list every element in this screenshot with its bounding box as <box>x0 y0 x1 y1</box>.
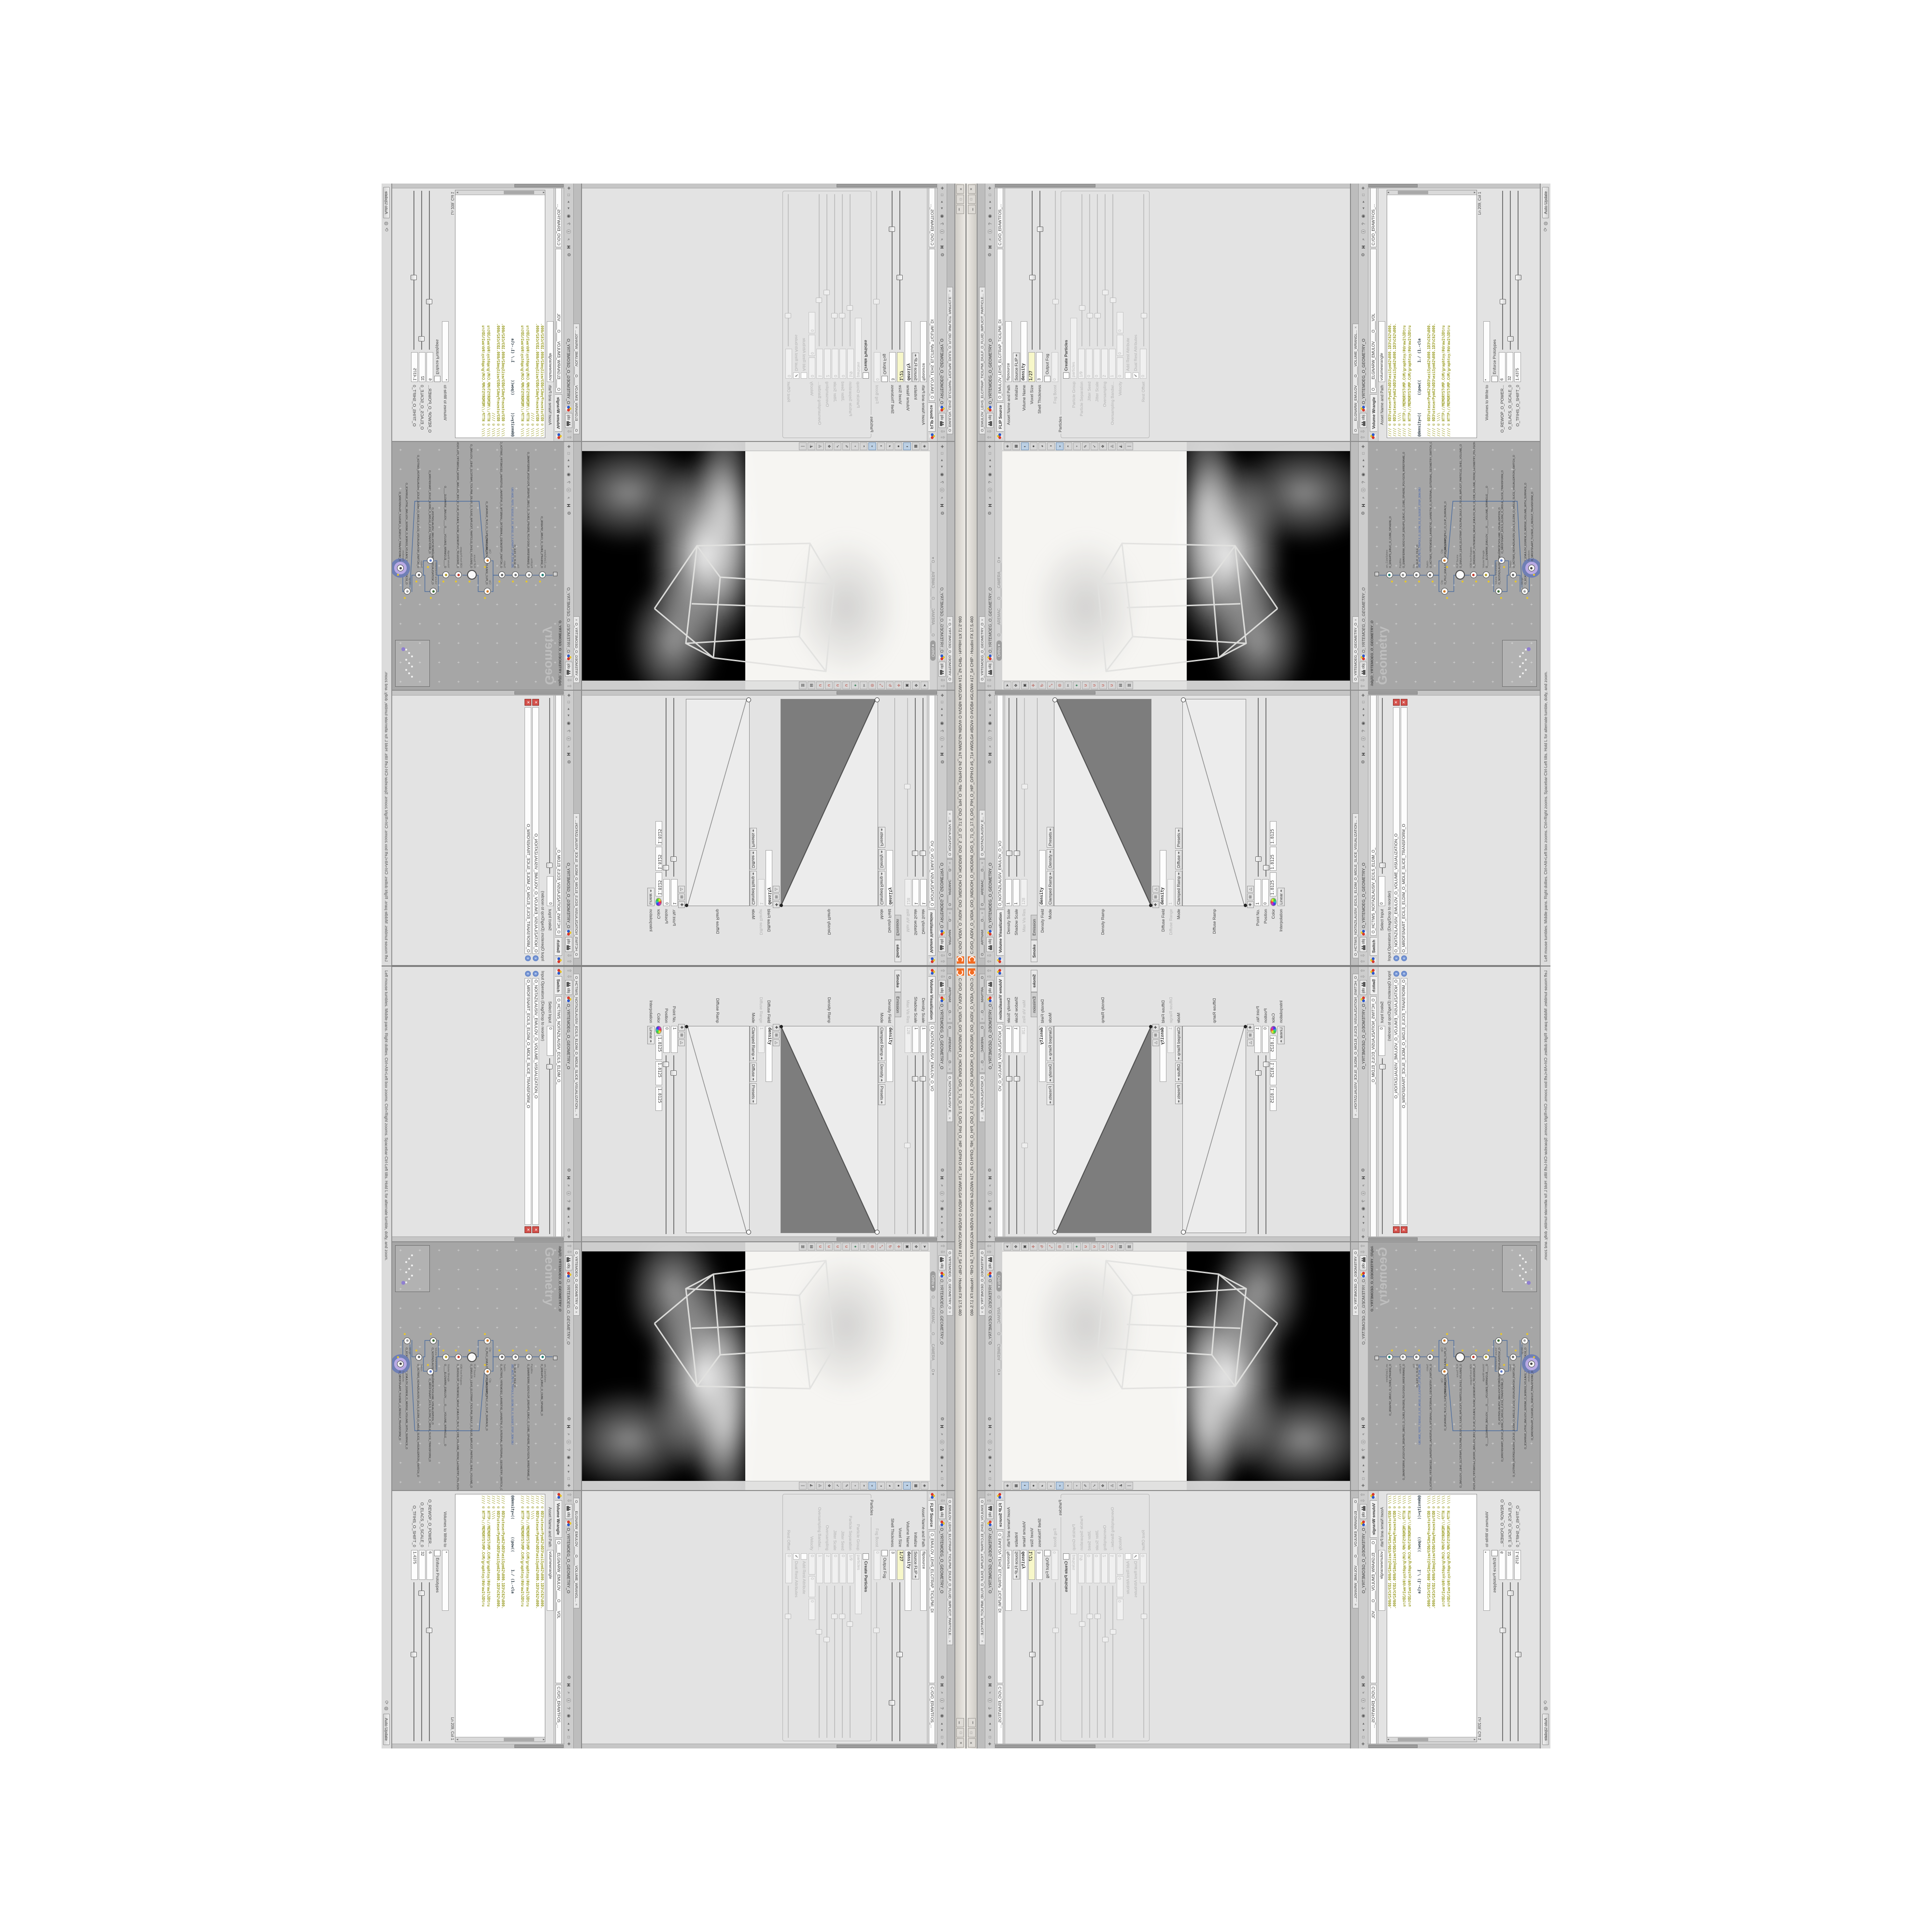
param-slider[interactable] <box>1006 1054 1012 1235</box>
radar-icon[interactable]: ◉ <box>987 471 993 478</box>
param-dropdown[interactable]: Linear◂▸ <box>1278 888 1285 906</box>
sync-icon[interactable]: ⟳ <box>384 1701 389 1705</box>
houdini-help-icon[interactable]: H <box>1361 1175 1366 1181</box>
param-field[interactable]: 0 <box>1378 876 1385 906</box>
slider-handle[interactable] <box>1263 1062 1269 1067</box>
param-field[interactable]: density <box>1021 321 1027 382</box>
param-dropdown[interactable]: Source FLIP◂▸ <box>912 1550 920 1579</box>
gear-icon[interactable]: ⚙ <box>939 759 945 765</box>
background-image-icon[interactable]: ▦ <box>1012 1482 1020 1490</box>
info-icon[interactable]: ⓘ <box>987 1439 993 1445</box>
split-left-icon[interactable]: ◂ <box>1361 1462 1365 1468</box>
param-field[interactable]: density <box>766 850 772 906</box>
network-node[interactable] <box>1495 1337 1502 1344</box>
breadcrumb-path[interactable]: O_YRTEMOEG_O_GEOMETRY_O <box>988 518 993 653</box>
param-checkbox[interactable] <box>863 1553 869 1560</box>
gear-icon[interactable]: ⚙ <box>566 1416 571 1422</box>
ramp-widget[interactable] <box>1054 1026 1151 1233</box>
param-field[interactable]: 6 <box>1499 352 1506 382</box>
help-circle-icon[interactable]: ? <box>567 1705 571 1711</box>
param-field[interactable]: 0 <box>1117 1599 1123 1620</box>
close-tab-icon[interactable]: ✕ <box>948 812 952 815</box>
snap-point-magnet-icon[interactable]: ∪ <box>1082 1243 1090 1250</box>
axis-gizmo-icon[interactable]: ✦ <box>851 682 859 689</box>
pane-scroll-thumb[interactable] <box>514 184 564 187</box>
network-root-chip[interactable]: obj <box>565 413 572 428</box>
param-checkbox[interactable] <box>1063 1553 1069 1560</box>
close-tab-icon[interactable]: ✕ <box>575 619 579 621</box>
close-tab-icon[interactable]: ✕ <box>980 812 984 815</box>
houdini-help-icon[interactable]: H <box>1361 751 1366 757</box>
sync-icon[interactable]: ⟳ <box>384 227 389 231</box>
slider-handle[interactable] <box>905 784 911 789</box>
param-field[interactable]: 1 <box>1254 879 1261 906</box>
split-right-icon[interactable]: ▸ <box>1361 1220 1365 1226</box>
slider-handle[interactable] <box>1110 1629 1116 1634</box>
param-field[interactable]: 0 <box>1117 312 1123 333</box>
param-slider[interactable] <box>1086 1585 1093 1739</box>
node-name-field[interactable]: O_NOITAZILAUSIV_EMULOV_O_VO <box>929 1024 936 1239</box>
annotate-pen-icon[interactable]: ✎ <box>842 442 850 450</box>
houdini-help-icon[interactable]: H <box>1361 502 1366 509</box>
wireframe-icon[interactable]: ◓ <box>1065 1482 1072 1490</box>
code-scroll-thumb[interactable] <box>504 1738 534 1741</box>
param-dropdown[interactable]: Density◂▸ <box>1047 849 1054 869</box>
breadcrumb-path[interactable]: O_YRTEMOEG_O_GEOMETRY_O <box>940 1528 945 1673</box>
param-slider[interactable] <box>913 1054 919 1235</box>
split-left-icon[interactable]: ◂ <box>567 205 571 212</box>
axis-gizmo-icon[interactable]: ✦ <box>1073 1243 1081 1250</box>
pane-scrollbar[interactable] <box>994 1236 1350 1241</box>
help-circle-icon[interactable]: ? <box>940 1705 945 1711</box>
houdini-help-icon[interactable]: H <box>988 751 993 757</box>
split-right-icon[interactable]: ▸ <box>940 457 944 463</box>
param-slider[interactable] <box>1515 1581 1521 1742</box>
param-checkbox[interactable] <box>1044 1550 1051 1556</box>
reorder-icon[interactable]: ‹ <box>533 971 539 977</box>
param-slider[interactable] <box>921 1054 927 1235</box>
pane-tab[interactable]: O____AREMAC____O...✕ <box>979 859 985 909</box>
param-field[interactable]: 1/27 <box>897 352 904 382</box>
input-operator-field[interactable]: O_MROFSNART_ECILS_ELDIM_O_MIDLE_SLICE_TR… <box>1401 978 1407 1225</box>
hand-tool-icon[interactable]: ✥ <box>1012 682 1020 689</box>
param-slider[interactable] <box>1255 1054 1261 1235</box>
houdini-help-icon[interactable]: H <box>1361 244 1366 250</box>
pane-scrollbar[interactable] <box>582 1744 938 1748</box>
clipping-icon[interactable]: ◭ <box>1117 1482 1124 1490</box>
houdini-help-icon[interactable]: H <box>567 751 571 757</box>
close-tab-icon[interactable]: ✕ <box>948 1117 952 1119</box>
gear-icon[interactable]: ⚙ <box>566 510 571 516</box>
param-field[interactable]: 128 <box>905 879 911 906</box>
search-icon[interactable]: ⌕ <box>939 1690 945 1696</box>
param-field[interactable]: 3 <box>1036 1550 1043 1580</box>
node-name-field[interactable]: O_EMULOV_LEHS_ELCITRAP_TICILPMI_DI <box>929 249 936 401</box>
param-field[interactable]: 3 <box>889 352 896 382</box>
search-icon[interactable]: ⌕ <box>566 1690 571 1696</box>
viewport-canvas[interactable]: ➤✥▣✛↻⤡◎✂✦∪∪∪∪▤▥ ◈▦◐●◕◑◒◓∘✎➶❖◬◭❘ <box>582 442 930 690</box>
probe-icon[interactable]: ➶ <box>834 442 841 450</box>
param-field[interactable]: 0 <box>1117 335 1123 356</box>
slider-handle[interactable] <box>824 290 830 295</box>
network-root-chip[interactable]: obj <box>1360 413 1367 428</box>
pose-handle-icon[interactable]: ◎ <box>1056 1243 1064 1250</box>
hda-path-field[interactable]: C:/O/O_ERAWTFOS_... <box>997 185 1003 247</box>
network-root-chip[interactable]: obj <box>938 937 946 952</box>
network-node[interactable] <box>455 571 462 578</box>
camera-menu[interactable]: O____AREMAC____O____CAMERA____O ▾ <box>997 1295 1001 1375</box>
nav-back-icon[interactable]: ⇧ <box>1361 1244 1366 1248</box>
breadcrumb-path[interactable]: O_YRTEMOEG_O_GEOMETRY_O <box>567 1528 571 1673</box>
pane-scrollbar[interactable] <box>994 691 1350 696</box>
param-field[interactable]: 32 <box>1506 352 1513 382</box>
param-checkbox[interactable]: ✓ <box>794 1553 800 1560</box>
search-icon[interactable]: ⌕ <box>987 743 993 750</box>
slider-handle[interactable] <box>547 1064 553 1069</box>
float-pane-icon[interactable]: ✚ <box>567 1234 571 1240</box>
breadcrumb-path[interactable]: O_YRTEMOEG_O_GEOMETRY_O <box>940 1279 945 1414</box>
param-field[interactable]: 0 <box>1051 1550 1058 1580</box>
clipping-icon[interactable]: ◭ <box>808 1482 815 1490</box>
nav-back-icon[interactable]: ⇧ <box>939 968 945 973</box>
rotate-handle-icon[interactable]: ↻ <box>1038 682 1046 689</box>
radar-icon[interactable]: ◉ <box>1361 213 1366 219</box>
split-left-icon[interactable]: ◂ <box>988 464 992 470</box>
param-slider[interactable] <box>832 1585 838 1739</box>
param-slider[interactable] <box>817 193 823 347</box>
network-node[interactable] <box>1470 571 1477 578</box>
param-field[interactable]: 1.8125 <box>655 821 662 845</box>
network-node[interactable] <box>1386 571 1393 578</box>
param-checkbox[interactable]: ✓ <box>1133 1553 1139 1560</box>
slider-handle[interactable] <box>816 298 823 303</box>
marker-button[interactable]: △ <box>1247 1039 1254 1046</box>
color-swatch[interactable] <box>656 1026 662 1034</box>
slider-handle[interactable] <box>426 1628 433 1633</box>
slider-handle[interactable] <box>839 1614 846 1619</box>
scroll-up-icon[interactable]: ▲ <box>1387 1737 1390 1742</box>
input-operator-field[interactable]: O_NOITAZILAUSIV_EMULOV_O_VOLUME_VISUALIZ… <box>532 978 539 1225</box>
view-pivot-icon[interactable]: ◬ <box>1108 442 1116 450</box>
split-right-icon[interactable]: ▸ <box>1361 706 1365 712</box>
probe-icon[interactable]: ➶ <box>1091 1482 1098 1490</box>
auto-update-button[interactable]: Auto Update <box>1542 1714 1549 1745</box>
param-field[interactable]: 0 <box>785 1553 792 1583</box>
float-pane-icon[interactable]: ✚ <box>940 1234 944 1240</box>
search-icon[interactable]: ⌕ <box>987 1182 993 1189</box>
maximize-pane-icon[interactable]: □ <box>940 450 944 456</box>
help-circle-icon[interactable]: ? <box>1361 728 1366 734</box>
smooth-shaded-icon[interactable]: ◕ <box>1038 442 1046 450</box>
nav-forward-icon[interactable]: ⇩ <box>987 429 993 434</box>
param-slider[interactable] <box>874 190 881 351</box>
hda-path-field[interactable]: C:/O/O_ERAWTFOS_... <box>1370 1685 1377 1747</box>
scissors-icon[interactable]: ✂ <box>860 682 867 689</box>
group-list-icon[interactable]: ❖ <box>825 442 833 450</box>
param-field[interactable]: 3 <box>1036 352 1043 382</box>
ramp-endpoint[interactable] <box>780 904 783 907</box>
houdini-help-icon[interactable]: H <box>567 502 571 509</box>
add-point-button[interactable]: ✚ <box>1152 901 1159 908</box>
ramp-endpoint[interactable] <box>685 1025 688 1028</box>
param-dropdown[interactable]: Diffuse◂▸ <box>1175 850 1182 869</box>
param-field[interactable]: 0 <box>1117 357 1123 379</box>
rotate-handle-icon[interactable]: ↻ <box>886 682 894 689</box>
info-icon[interactable]: ⓘ <box>939 1439 945 1445</box>
split-right-icon[interactable]: ▸ <box>1361 457 1365 463</box>
param-dropdown[interactable]: Clamped Ramp◂▸ <box>1047 1026 1054 1061</box>
pane-scroll-thumb[interactable] <box>995 1745 1095 1748</box>
maximize-pane-icon[interactable]: □ <box>567 1227 571 1233</box>
param-slider[interactable] <box>1094 1585 1100 1739</box>
pane-tab[interactable]: O_YRTEMOEG_O_GEOMETRY_O✕ <box>979 616 985 683</box>
param-field[interactable]: 1 <box>1005 1026 1012 1053</box>
pane-tab[interactable]: O_HCTIWS_NOITAZILAUSIV_ECILS_ELDIM_O_MID… <box>574 974 580 1119</box>
network-node[interactable] <box>498 1354 505 1361</box>
param-slider[interactable] <box>897 190 904 351</box>
param-field[interactable]: 1/27 <box>897 1550 904 1580</box>
ramp-endpoint-handle[interactable] <box>746 1230 751 1235</box>
hda-path-field[interactable]: C:/O/O_ERAWTFOS_... <box>929 185 936 247</box>
pane-scroll-thumb[interactable] <box>995 184 1095 187</box>
minimize-button[interactable]: ▁ <box>968 1718 976 1727</box>
color-swatch[interactable] <box>1270 1026 1277 1034</box>
breadcrumb-path[interactable]: O_YRTEMOEG_O_GEOMETRY_O <box>988 1279 993 1414</box>
radar-icon[interactable]: ◉ <box>1361 1206 1366 1212</box>
split-left-icon[interactable]: ◂ <box>940 464 944 470</box>
slider-handle[interactable] <box>874 1628 880 1633</box>
scale-handle-icon[interactable]: ⤡ <box>877 682 885 689</box>
slider-handle[interactable] <box>889 1700 895 1705</box>
smooth-shaded-icon[interactable]: ◕ <box>886 442 894 450</box>
search-icon[interactable]: ⌕ <box>939 236 945 242</box>
param-checkbox[interactable] <box>801 1553 808 1560</box>
network-node[interactable] <box>1528 1361 1535 1367</box>
slider-handle[interactable] <box>1079 305 1085 311</box>
info-icon[interactable]: ⓘ <box>987 487 993 493</box>
param-field[interactable]: 1 <box>816 349 823 379</box>
network-node[interactable] <box>1498 1368 1505 1375</box>
param-slider[interactable] <box>1021 697 1027 878</box>
param-field[interactable]: 1/9 <box>847 1553 854 1583</box>
help-circle-icon[interactable]: ? <box>567 728 571 734</box>
remove-input-button[interactable]: ✕ <box>532 1226 539 1233</box>
param-slider[interactable] <box>547 697 554 875</box>
group-list-icon[interactable]: ❖ <box>1099 442 1107 450</box>
float-pane-icon[interactable]: ✚ <box>567 1741 571 1747</box>
param-slider[interactable] <box>664 697 670 878</box>
ramp-endpoint-handle[interactable] <box>746 697 751 702</box>
info-icon[interactable]: ⓘ <box>987 228 993 235</box>
folder-tab-emission[interactable]: Emission <box>895 992 901 1017</box>
nav-back-icon[interactable]: ⇧ <box>939 1492 945 1497</box>
radar-icon[interactable]: ◉ <box>987 1713 993 1719</box>
info-icon[interactable]: ⓘ <box>939 1697 945 1704</box>
split-right-icon[interactable]: ▸ <box>1361 1727 1365 1733</box>
marker-button[interactable]: △ <box>1152 1039 1159 1046</box>
param-slider[interactable] <box>412 1581 418 1742</box>
maximize-pane-icon[interactable]: □ <box>1361 1734 1365 1740</box>
code-scrollbar[interactable]: ▲▼ <box>455 190 545 195</box>
param-dropdown[interactable]: Presets◂▸ <box>1175 1083 1182 1104</box>
input-operator-field[interactable]: O_NOITAZILAUSIV_EMULOV_O_VOLUME_VISUALIZ… <box>1393 707 1400 954</box>
maximize-pane-icon[interactable]: □ <box>1361 450 1365 456</box>
close-tab-icon[interactable]: ✕ <box>980 862 984 864</box>
search-icon[interactable]: ⌕ <box>987 1690 993 1696</box>
add-point-button[interactable]: ✚ <box>773 1024 780 1031</box>
folder-tab-smoke[interactable]: Smoke <box>895 940 901 962</box>
help-circle-icon[interactable]: ? <box>940 1447 945 1453</box>
node-type-tab[interactable]: Volume Wrangle <box>555 1500 563 1538</box>
gear-icon[interactable]: ⚙ <box>1361 1674 1366 1680</box>
network-node[interactable] <box>1413 1354 1420 1361</box>
param-slider[interactable] <box>1021 1054 1027 1235</box>
info-icon[interactable]: ⓘ <box>939 228 945 235</box>
param-checkbox[interactable] <box>1125 372 1131 379</box>
param-field[interactable]: 0 <box>1051 352 1058 382</box>
remove-input-button[interactable]: ✕ <box>1393 699 1400 706</box>
param-slider[interactable] <box>824 193 831 347</box>
param-field[interactable]: density <box>1021 1550 1027 1611</box>
slider-handle[interactable] <box>1022 784 1028 789</box>
flat-shaded-icon[interactable]: ◑ <box>877 1482 885 1490</box>
vex-code-editor[interactable]: //// © 0D3%steserPym62%0D3%eziSym62%000.… <box>455 190 545 438</box>
split-right-icon[interactable]: ▸ <box>988 1469 992 1475</box>
network-node[interactable] <box>415 571 422 578</box>
slider-handle[interactable] <box>785 313 792 318</box>
param-slider[interactable] <box>874 1581 881 1742</box>
param-field[interactable]: 128 <box>1021 1026 1027 1053</box>
help-circle-icon[interactable]: ? <box>940 1198 945 1204</box>
param-field[interactable]: 1 <box>1013 879 1020 906</box>
layout-single-icon[interactable]: ◈ <box>1004 442 1011 450</box>
slider-handle[interactable] <box>1102 290 1108 295</box>
points-display-icon[interactable]: ∘ <box>851 442 859 450</box>
param-field[interactable]: flipsource <box>920 321 927 382</box>
delete-point-button[interactable]: ⊞ <box>1247 1032 1254 1038</box>
slider-handle[interactable] <box>1141 1614 1147 1619</box>
nav-forward-icon[interactable]: ⇩ <box>566 953 571 958</box>
split-right-icon[interactable]: ▸ <box>567 1469 571 1475</box>
snapshot-icon[interactable]: ▥ <box>1125 682 1133 689</box>
slider-handle[interactable] <box>1087 313 1093 318</box>
delete-point-button[interactable]: ⊞ <box>1152 1032 1159 1038</box>
ramp-endpoint-handle[interactable] <box>1052 1230 1057 1235</box>
nav-forward-icon[interactable]: ⇩ <box>987 1250 993 1254</box>
param-field[interactable]: 0 <box>809 1553 815 1575</box>
maximize-pane-icon[interactable]: □ <box>940 1227 944 1233</box>
network-node[interactable] <box>1386 1354 1393 1361</box>
ramp-widget[interactable] <box>686 699 750 906</box>
delete-point-button[interactable]: ⊞ <box>1152 894 1159 900</box>
param-slider[interactable] <box>1379 697 1385 875</box>
wire-shaded-icon[interactable]: ◒ <box>868 1482 876 1490</box>
maximize-pane-icon[interactable]: □ <box>940 192 944 198</box>
projection-menu[interactable]: Ortho ▾ <box>930 640 936 661</box>
param-slider[interactable] <box>1109 193 1116 347</box>
add-point-button[interactable]: ✚ <box>678 901 685 908</box>
pane-tab[interactable]: O____ELGNARW_EMULOV____O____VOLUME_WRANG… <box>1352 324 1358 434</box>
param-field[interactable]: volumewrangle <box>547 321 554 382</box>
float-pane-icon[interactable]: ✚ <box>1361 443 1365 450</box>
radar-icon[interactable]: ◉ <box>939 1454 945 1461</box>
gear-icon[interactable]: ⚙ <box>1361 1167 1366 1173</box>
node-type-tab[interactable]: Switch <box>555 937 563 956</box>
node-name-field[interactable]: O____ELGNARW_EMULOV____O____VOL <box>556 1539 562 1683</box>
param-field[interactable]: 1.4375 <box>411 352 418 382</box>
param-field[interactable]: 0 <box>809 335 815 356</box>
split-left-icon[interactable]: ◂ <box>940 1213 944 1220</box>
param-field[interactable]: flipsource <box>920 1550 927 1611</box>
param-checkbox[interactable] <box>435 376 441 382</box>
help-circle-icon[interactable]: ? <box>940 479 945 485</box>
slider-handle[interactable] <box>671 1070 677 1076</box>
network-node[interactable] <box>430 1337 437 1344</box>
search-icon[interactable]: ⌕ <box>1361 495 1366 501</box>
param-field[interactable]: 128 <box>1021 879 1027 906</box>
folder-tab-emission[interactable]: Emission <box>895 915 901 940</box>
network-node[interactable] <box>526 571 532 578</box>
network-node[interactable] <box>1441 588 1448 595</box>
background-image-icon[interactable]: ▦ <box>1012 442 1020 450</box>
sync-icon[interactable]: ⟳ <box>1543 1701 1548 1705</box>
ramp-endpoint[interactable] <box>1244 904 1247 907</box>
close-tab-icon[interactable]: ✕ <box>948 862 952 864</box>
param-field[interactable]: 128 <box>905 1026 911 1053</box>
info-icon[interactable]: ⓘ <box>1360 487 1366 493</box>
slider-handle[interactable] <box>1087 1614 1093 1619</box>
param-slider[interactable] <box>1102 193 1108 347</box>
delete-point-button[interactable]: ⊞ <box>1247 894 1254 900</box>
slider-handle[interactable] <box>1006 1076 1012 1081</box>
nav-back-icon[interactable]: ⇧ <box>939 959 945 964</box>
param-field[interactable]: 1.8125 <box>655 847 662 871</box>
annotate-pen-icon[interactable]: ✎ <box>1082 442 1090 450</box>
snap-grid-magnet-icon[interactable]: ∪ <box>816 1243 824 1250</box>
network-root-chip[interactable]: obj <box>986 937 994 952</box>
maximize-pane-icon[interactable]: □ <box>1361 699 1365 705</box>
pane-scrollbar[interactable] <box>392 1236 565 1241</box>
breadcrumb-path[interactable]: O_YRTEMOEG_O_GEOMETRY_O <box>1361 767 1366 928</box>
network-node[interactable] <box>1455 570 1465 580</box>
wireframe-icon[interactable]: ◓ <box>860 1482 867 1490</box>
slider-handle[interactable] <box>411 1652 417 1657</box>
delete-point-button[interactable]: ⊞ <box>773 894 780 900</box>
param-slider[interactable] <box>897 1581 904 1742</box>
param-slider[interactable] <box>1263 697 1269 878</box>
view-pivot-icon[interactable]: ◬ <box>816 1482 824 1490</box>
node-type-tab[interactable]: Volume Visualization <box>996 976 1004 1023</box>
gear-icon[interactable]: ⚙ <box>939 252 945 258</box>
param-field[interactable]: 0 <box>809 1576 815 1597</box>
pane-tab[interactable]: O_YRTEMOEG_O_GEOMETRY_O✕ <box>1352 616 1358 683</box>
breadcrumb-path[interactable]: O_YRTEMOEG_O_GEOMETRY_O <box>988 259 993 404</box>
maximize-button[interactable]: □ <box>968 1728 976 1737</box>
pane-tab[interactable]: O_YRTEMOEG_O_GEOMETRY_O✕ <box>574 616 580 683</box>
radar-icon[interactable]: ◉ <box>939 1713 945 1719</box>
param-field[interactable]: 1.8125 <box>1270 1087 1277 1111</box>
slider-handle[interactable] <box>897 1652 903 1657</box>
group-list-icon[interactable]: ❖ <box>825 1482 833 1490</box>
param-field[interactable]: 2 <box>1101 349 1108 379</box>
pane-tab[interactable]: O_HCTIWS_NOITAZILAUSIV_ECILS_ELDIM_O_MID… <box>574 813 580 958</box>
search-icon[interactable]: ⌕ <box>987 236 993 242</box>
search-icon[interactable]: ⌕ <box>1361 1182 1366 1189</box>
houdini-help-icon[interactable]: H <box>988 1682 993 1688</box>
node-name-field[interactable]: O_HCTIWS_NOITAZILAUSIV_ECILS_ELDIM_O_ <box>1370 693 1377 936</box>
breadcrumb-path[interactable]: O_YRTEMOEG_O_GEOMETRY_O <box>988 1528 993 1673</box>
flat-shaded-icon[interactable]: ◑ <box>1047 442 1055 450</box>
